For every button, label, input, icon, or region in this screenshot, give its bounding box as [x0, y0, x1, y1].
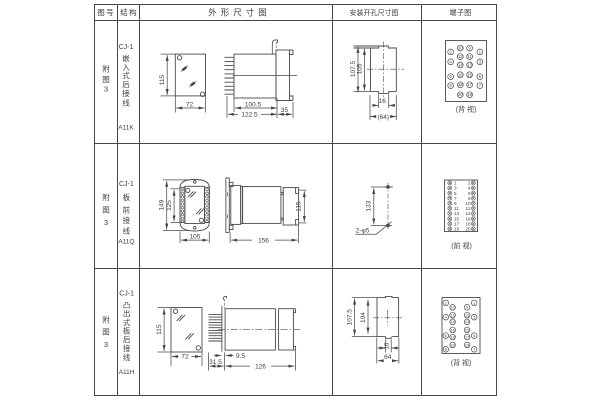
- svg-text:15: 15: [467, 72, 472, 77]
- svg-text:A11H: A11H: [119, 369, 135, 376]
- svg-text:6: 6: [450, 74, 453, 79]
- svg-text:31.5: 31.5: [209, 359, 222, 366]
- svg-text:12: 12: [450, 313, 455, 318]
- svg-text:16: 16: [385, 342, 391, 349]
- svg-text:线: 线: [123, 352, 131, 362]
- svg-text:149: 149: [159, 199, 166, 210]
- svg-text:72: 72: [181, 354, 189, 361]
- svg-text:19: 19: [467, 92, 472, 97]
- svg-text:6: 6: [445, 333, 448, 338]
- svg-text:20: 20: [458, 92, 463, 97]
- svg-text:115: 115: [296, 201, 303, 212]
- svg-text:19: 19: [454, 227, 460, 232]
- svg-text:3: 3: [473, 315, 476, 320]
- svg-text:8: 8: [445, 347, 448, 352]
- svg-text:115: 115: [159, 74, 166, 85]
- svg-text:122.5: 122.5: [241, 112, 258, 119]
- svg-text:133: 133: [366, 200, 373, 211]
- svg-text:后: 后: [123, 334, 131, 344]
- svg-text:出: 出: [123, 308, 131, 318]
- svg-text:72: 72: [186, 101, 194, 108]
- svg-text:100.5: 100.5: [245, 102, 262, 109]
- svg-text:3: 3: [104, 85, 108, 94]
- svg-text:5: 5: [473, 333, 476, 338]
- svg-text:3: 3: [104, 340, 108, 349]
- svg-text:结构: 结构: [120, 7, 138, 17]
- svg-text:4: 4: [445, 315, 448, 320]
- svg-text:接: 接: [122, 88, 130, 98]
- svg-text:12: 12: [458, 54, 463, 59]
- svg-text:9: 9: [466, 305, 469, 310]
- svg-text:A11K: A11K: [118, 125, 134, 132]
- svg-text:107.5: 107.5: [347, 309, 354, 326]
- svg-text:35: 35: [281, 107, 289, 114]
- svg-text:10: 10: [450, 305, 455, 310]
- svg-text:104: 104: [360, 312, 367, 323]
- svg-text:线: 线: [122, 97, 130, 107]
- svg-text:1: 1: [473, 300, 476, 305]
- svg-text:9.5: 9.5: [236, 353, 245, 360]
- svg-text:10: 10: [458, 46, 463, 51]
- svg-text:2-φ5: 2-φ5: [356, 227, 370, 234]
- svg-text:7: 7: [479, 83, 482, 88]
- svg-text:后: 后: [122, 79, 130, 89]
- svg-text:3: 3: [104, 218, 108, 227]
- svg-text:9: 9: [468, 46, 471, 51]
- svg-text:125: 125: [166, 200, 173, 211]
- svg-text:2: 2: [450, 49, 453, 54]
- svg-text:前: 前: [123, 205, 131, 215]
- svg-text:13: 13: [467, 63, 472, 68]
- svg-text:17: 17: [465, 334, 470, 339]
- svg-text:19: 19: [465, 342, 470, 347]
- svg-text:CJ-1: CJ-1: [119, 181, 134, 188]
- svg-text:156: 156: [258, 237, 269, 244]
- svg-text:附: 附: [102, 65, 110, 74]
- svg-text:CJ-1: CJ-1: [119, 291, 134, 298]
- svg-text:线: 线: [123, 225, 131, 235]
- svg-text:式: 式: [123, 317, 131, 327]
- svg-text:115: 115: [156, 324, 163, 335]
- svg-text:16: 16: [379, 98, 387, 105]
- svg-text:图: 图: [102, 75, 110, 84]
- svg-text:11: 11: [467, 54, 472, 59]
- svg-text:20: 20: [465, 227, 471, 232]
- svg-text:15: 15: [465, 327, 470, 332]
- svg-text:(背 视): (背 视): [451, 358, 472, 367]
- svg-text:图号: 图号: [97, 8, 115, 17]
- svg-text:5: 5: [479, 74, 482, 79]
- svg-text:端子图: 端子图: [449, 8, 471, 17]
- svg-text:嵌: 嵌: [122, 54, 130, 63]
- svg-text:14: 14: [458, 63, 463, 68]
- svg-text:附: 附: [102, 315, 110, 324]
- svg-text:14: 14: [450, 319, 455, 324]
- svg-text:图: 图: [102, 327, 110, 336]
- svg-text:105: 105: [190, 233, 201, 240]
- svg-text:(前 视): (前 视): [451, 241, 472, 250]
- svg-text:外形尺寸图: 外形尺寸图: [208, 8, 271, 18]
- svg-text:A11Q: A11Q: [118, 238, 134, 245]
- svg-text:板: 板: [123, 192, 131, 202]
- svg-text:8: 8: [450, 83, 453, 88]
- svg-text:接: 接: [123, 215, 131, 225]
- svg-text:附: 附: [102, 193, 110, 202]
- svg-text:17: 17: [467, 82, 472, 87]
- svg-text:7: 7: [473, 347, 476, 352]
- svg-text:图: 图: [102, 205, 110, 214]
- svg-text:64: 64: [384, 354, 392, 361]
- svg-text:16: 16: [450, 327, 455, 332]
- svg-text:20: 20: [450, 342, 455, 347]
- svg-text:(64): (64): [378, 114, 390, 121]
- svg-text:1: 1: [479, 49, 482, 54]
- svg-text:安装开孔尺寸图: 安装开孔尺寸图: [350, 8, 399, 17]
- svg-text:105: 105: [356, 63, 363, 74]
- svg-text:板: 板: [123, 326, 131, 336]
- svg-text:式: 式: [122, 70, 130, 80]
- svg-text:CJ-1: CJ-1: [119, 44, 134, 51]
- svg-text:4: 4: [450, 59, 453, 64]
- svg-text:126: 126: [255, 363, 266, 370]
- svg-text:13: 13: [465, 319, 470, 324]
- svg-text:接: 接: [123, 343, 131, 353]
- svg-text:16: 16: [458, 72, 463, 77]
- svg-text:(背 视): (背 视): [456, 105, 477, 114]
- svg-text:18: 18: [458, 82, 463, 87]
- svg-text:3: 3: [479, 59, 482, 64]
- svg-text:18: 18: [450, 334, 455, 339]
- svg-text:2: 2: [445, 300, 448, 305]
